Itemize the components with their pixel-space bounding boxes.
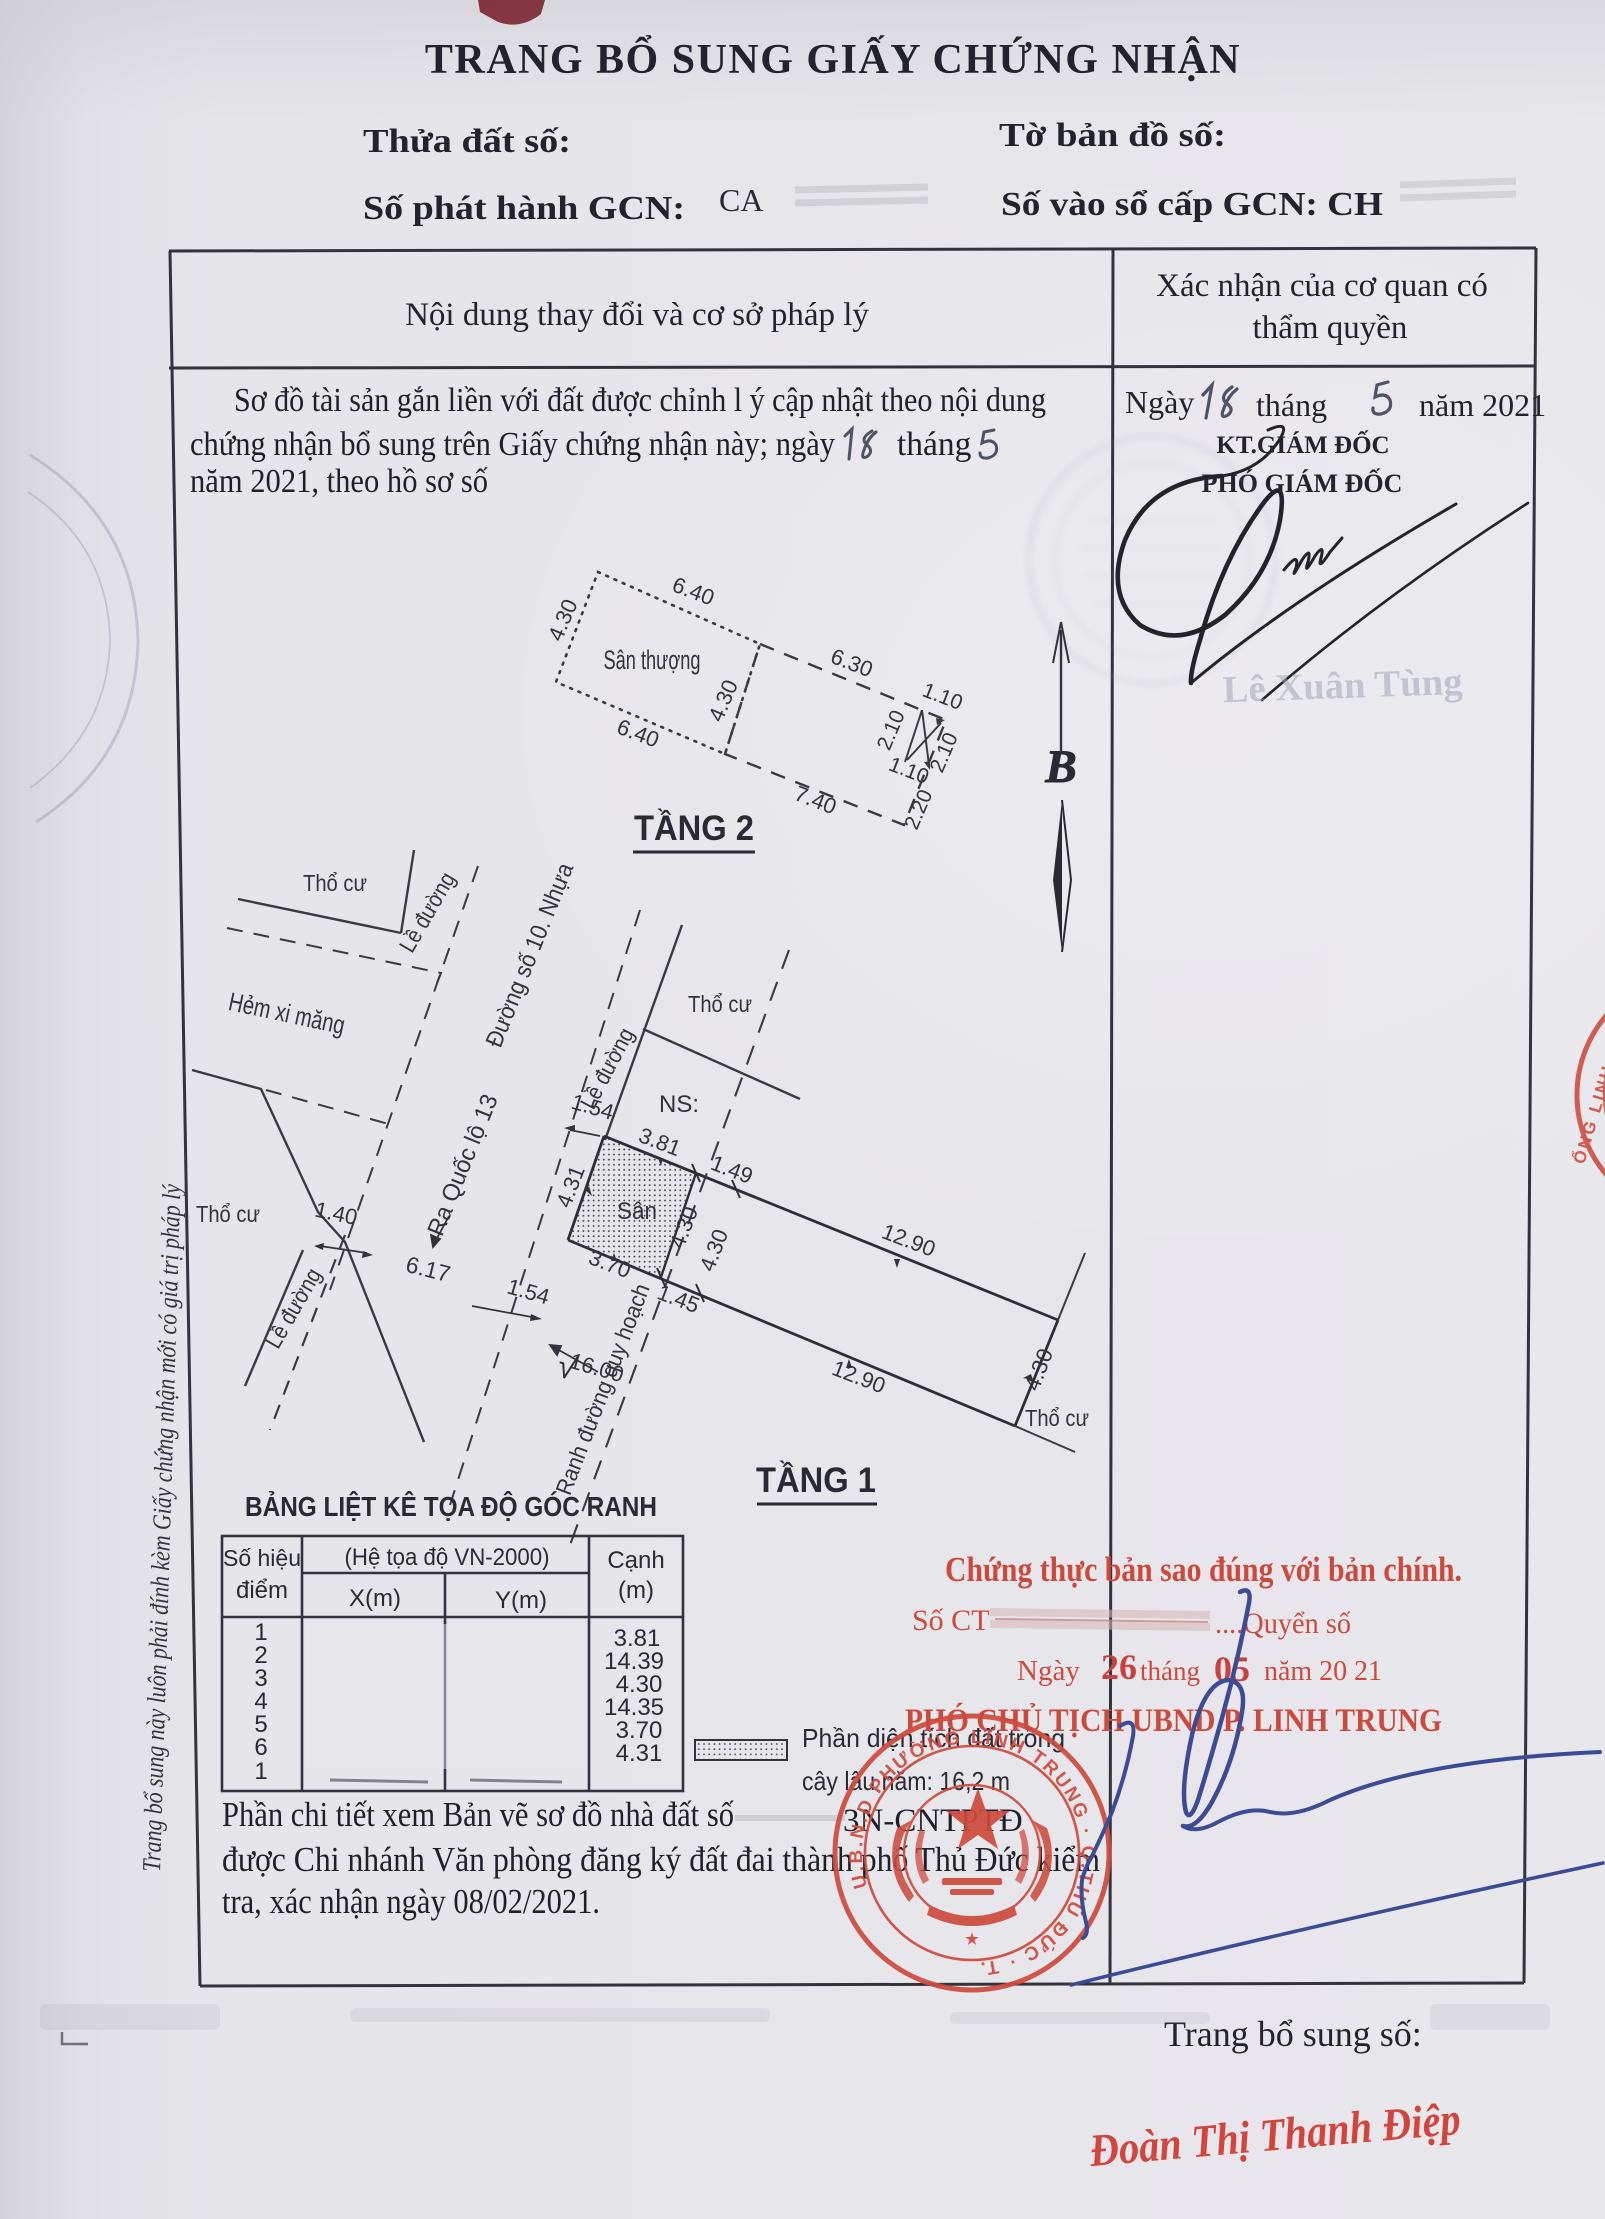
svg-text:Sân thượng: Sân thượng [604,645,701,675]
svg-text:TRANG BỔ SUNG GIẤY CHỨNG NHẬN: TRANG BỔ SUNG GIẤY CHỨNG NHẬN [425,34,1241,83]
svg-text:Y(m): Y(m) [495,1587,547,1614]
svg-text:năm 2021: năm 2021 [1419,387,1546,423]
svg-text:điểm: điểm [236,1577,288,1604]
svg-text:12.90: 12.90 [879,1219,939,1262]
svg-text:được Chi nhánh Văn phòng đăng: được Chi nhánh Văn phòng đăng ký đất đai… [222,1840,1100,1879]
svg-text:....Quyển số: ....Quyển số [1215,1607,1351,1640]
svg-text:2.20: 2.20 [900,786,937,833]
svg-text:2.10: 2.10 [873,707,910,754]
svg-text:Nội dung thay đổi và cơ sở phá: Nội dung thay đổi và cơ sở pháp lý [405,297,869,333]
svg-text:chứng nhận bổ sung trên Giấy c: chứng nhận bổ sung trên Giấy chứng nhận … [190,426,835,463]
svg-text:Đoàn Thị Thanh Điệp: Đoàn Thị Thanh Điệp [1087,2093,1463,2176]
svg-text:4.30: 4.30 [1019,1345,1058,1394]
svg-text:TẦNG 2: TẦNG 2 [634,808,754,848]
svg-text:Thổ cư: Thổ cư [1025,1405,1089,1431]
svg-text:1: 1 [254,1758,267,1785]
svg-text:Số vào sổ cấp GCN: CH: Số vào sổ cấp GCN: CH [1001,186,1383,223]
svg-text:Chứng thực bản sao đúng với bả: Chứng thực bản sao đúng với bản chính. [945,1550,1462,1589]
svg-text:Sân: Sân [617,1198,657,1225]
svg-text:TẦNG 1: TẦNG 1 [756,1460,876,1500]
svg-text:tháng: tháng [1140,1656,1200,1686]
svg-text:ỔNG LINH TRUNG: ỔNG LINH TRUNG [1570,985,1605,1166]
svg-text:X(m): X(m) [349,1585,401,1612]
svg-text:1.54: 1.54 [569,1089,617,1125]
svg-text:1.40: 1.40 [313,1197,360,1230]
svg-text:6.40: 6.40 [614,714,663,753]
svg-text:tháng: tháng [897,426,972,463]
svg-text:Thổ cư: Thổ cư [303,870,367,896]
svg-text:7.40: 7.40 [791,781,840,820]
svg-text:thẩm quyền: thẩm quyền [1253,310,1408,346]
svg-text:1.10: 1.10 [919,679,965,715]
svg-text:Hẻm xi măng: Hẻm xi măng [226,986,348,1040]
svg-text:★: ★ [965,1932,979,1948]
svg-text:Ranh đường quy hoạch: Ranh đường quy hoạch [550,1280,655,1498]
svg-text:tháng: tháng [1256,387,1327,423]
svg-text:Đường số 10. Nhựa: Đường số 10. Nhựa [481,859,580,1051]
svg-text:BẢNG LIỆT KÊ TỌA ĐỘ GÓC RANH: BẢNG LIỆT KÊ TỌA ĐỘ GÓC RANH [245,1490,657,1522]
svg-text:CA: CA [719,182,763,218]
svg-text:(m): (m) [618,1577,654,1604]
svg-text:PHÓ CHỦ TỊCH UBND P. LINH TRUN: PHÓ CHỦ TỊCH UBND P. LINH TRUNG [905,1701,1442,1739]
svg-text:26: 26 [1101,1647,1137,1687]
svg-text:6: 6 [254,1734,267,1761]
svg-text:4.30: 4.30 [694,1226,733,1275]
svg-text:KT.GIÁM ĐỐC: KT.GIÁM ĐỐC [1216,430,1389,459]
svg-text:Lê Xuân Tùng: Lê Xuân Tùng [1222,661,1463,711]
svg-text:Trang bổ sung này luôn phải đí: Trang bổ sung này luôn phải đính kèm Giấ… [137,1183,186,1872]
svg-text:NS:: NS: [659,1091,699,1118]
svg-text:1.49: 1.49 [707,1150,756,1189]
svg-text:tra, xác nhận ngày 08/02/2021.: tra, xác nhận ngày 08/02/2021. [222,1882,600,1921]
svg-text:4.30: 4.30 [543,595,583,644]
svg-text:6.17: 6.17 [403,1251,453,1287]
svg-text:Số CT: Số CT [912,1604,990,1637]
svg-text:Thửa đất số:: Thửa đất số: [363,123,571,160]
svg-text:Ngày: Ngày [1125,384,1194,420]
svg-text:4.31: 4.31 [616,1740,663,1767]
svg-text:năm 2021, theo hồ sơ số: năm 2021, theo hồ sơ số [190,463,488,500]
svg-text:Phần chi tiết xem Bản vẽ sơ đồ: Phần chi tiết xem Bản vẽ sơ đồ nhà đất s… [222,1795,734,1834]
svg-text:Thổ cư: Thổ cư [196,1201,260,1227]
svg-text:Cạnh: Cạnh [607,1547,664,1574]
svg-text:Tờ bản đồ số:: Tờ bản đồ số: [999,117,1226,154]
svg-text:6.40: 6.40 [669,572,718,611]
svg-text:Thổ cư: Thổ cư [688,991,752,1017]
svg-text:Số hiệu: Số hiệu [223,1545,301,1571]
svg-text:Ra Quốc lộ 13: Ra Quốc lộ 13 [422,1091,503,1240]
svg-text:1.54: 1.54 [504,1274,552,1310]
svg-text:1.10: 1.10 [886,753,932,789]
svg-text:B: B [1044,741,1076,793]
svg-text:Xác nhận của cơ quan có: Xác nhận của cơ quan có [1156,268,1488,304]
svg-text:(Hệ tọa độ VN-2000): (Hệ tọa độ VN-2000) [345,1544,550,1571]
svg-text:Số phát hành GCN:: Số phát hành GCN: [363,190,685,227]
svg-text:Ngày: Ngày [1017,1655,1080,1687]
svg-text:6.30: 6.30 [827,643,876,682]
svg-text:năm 20 21: năm 20 21 [1264,1655,1382,1687]
svg-text:Sơ đồ tài sản gắn liền với đất: Sơ đồ tài sản gắn liền với đất được chỉn… [234,382,1046,419]
